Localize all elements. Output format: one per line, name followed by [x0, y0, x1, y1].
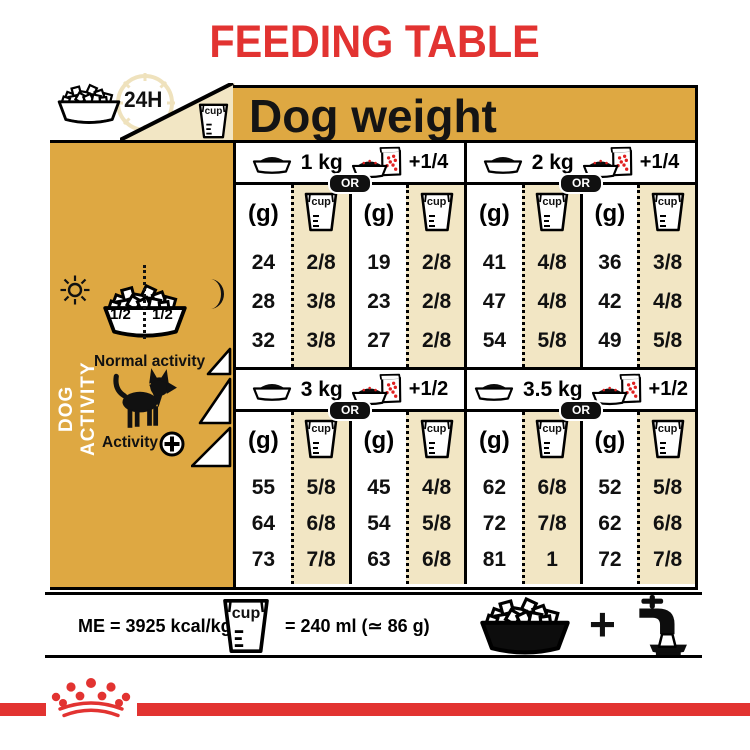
moon-icon	[199, 278, 225, 310]
section-3-5kg: (g) 62 72 81 cup 6/8 7/8 1 (	[464, 412, 695, 584]
plus-sign: +	[589, 597, 616, 651]
gram-value: 54	[352, 512, 407, 536]
crown-logo	[47, 674, 135, 718]
grams-column: (g) 36 42 49	[580, 185, 638, 367]
weight-cell-1kg: 1 kg +1/4 OR	[236, 143, 464, 182]
cup-value: 7/8	[525, 512, 580, 536]
cup-icon: cup	[304, 192, 338, 237]
dog-activity-vertical-label: DOG ACTIVITY	[56, 341, 86, 477]
table-band-2: 3 kg +1/2 OR 3.5 kg +1/2 OR (g) 55 64	[236, 367, 695, 584]
dog-weight-label: Dog weight	[249, 89, 497, 143]
dog-weight-header: Dog weight	[233, 85, 698, 143]
cup-value: 7/8	[294, 548, 349, 572]
gram-value: 49	[583, 329, 638, 353]
weight-label: 1 kg	[301, 151, 343, 175]
cup-value: 6/8	[525, 476, 580, 500]
half-ration-right: 1/2	[152, 306, 173, 323]
cups-column: cup 3/8 4/8 5/8	[637, 185, 695, 367]
weight-label: 2 kg	[532, 151, 574, 175]
cup-value: 3/8	[640, 251, 695, 275]
weight-label: 3.5 kg	[523, 378, 583, 402]
bottom-bar-right	[137, 703, 750, 716]
cup-value: 2/8	[409, 329, 464, 353]
activity-label: Activity	[102, 434, 158, 452]
meal-split-divider	[143, 265, 146, 339]
or-badge: OR	[559, 400, 603, 421]
cup-value: 2/8	[409, 290, 464, 314]
weight-header-row: 3 kg +1/2 OR 3.5 kg +1/2 OR	[236, 370, 695, 412]
weight-label: 3 kg	[301, 378, 343, 402]
gram-value: 62	[467, 476, 522, 500]
cup-value: 3/8	[294, 290, 349, 314]
cup-value: 5/8	[525, 329, 580, 353]
metabolizable-energy-label: ME = 3925 kcal/kg	[78, 616, 232, 637]
or-badge: OR	[328, 400, 372, 421]
data-row-area: (g) 55 64 73 cup 5/8 6/8 7/8	[236, 412, 695, 584]
or-badge: OR	[328, 173, 372, 194]
cup-value: 4/8	[409, 476, 464, 500]
cup-icon: cup	[304, 419, 338, 464]
weight-header-row: 1 kg +1/4 OR 2 kg +1/4 OR	[236, 143, 695, 185]
gram-value: 81	[467, 548, 522, 572]
grams-column: (g) 45 54 63	[349, 412, 407, 584]
cup-icon: cup	[198, 103, 229, 144]
cup-value: 5/8	[294, 476, 349, 500]
gram-value: 64	[236, 512, 291, 536]
gram-value: 23	[352, 290, 407, 314]
gram-value: 45	[352, 476, 407, 500]
section-1kg: (g) 24 28 32 cup 2/8 3/8 3/8	[236, 185, 464, 367]
gram-value: 72	[583, 548, 638, 572]
kibble-bowl-icon	[465, 596, 585, 656]
bottom-bar-left	[0, 703, 46, 716]
dog-icon	[106, 367, 178, 431]
half-ration-left: 1/2	[110, 306, 131, 323]
cup-value: 6/8	[294, 512, 349, 536]
cup-icon: cup	[651, 192, 685, 237]
cup-value: 4/8	[640, 290, 695, 314]
cups-column: cup 6/8 7/8 1	[522, 412, 580, 584]
cup-value: 7/8	[640, 548, 695, 572]
cups-column: cup 5/8 6/8 7/8	[637, 412, 695, 584]
dry-bowl-icon	[474, 379, 514, 401]
grams-column: (g) 52 62 72	[580, 412, 638, 584]
activity-plus-icon	[158, 430, 186, 458]
gram-value: 27	[352, 329, 407, 353]
weight-cell-3-5kg: 3.5 kg +1/2 OR	[464, 370, 695, 409]
gram-value: 41	[467, 251, 522, 275]
table-band-1: 1 kg +1/4 OR 2 kg +1/4 OR (g) 24 28	[236, 143, 695, 367]
cup-value: 5/8	[409, 512, 464, 536]
grams-column: (g) 41 47 54	[467, 185, 522, 367]
gram-value: 62	[583, 512, 638, 536]
grams-column: (g) 62 72 81	[467, 412, 522, 584]
kibble-bowl-icon	[54, 83, 124, 125]
gram-value: 28	[236, 290, 291, 314]
cups-column: cup 2/8 2/8 2/8	[406, 185, 464, 367]
wet-add-label: +1/2	[649, 378, 688, 401]
grams-column: (g) 55 64 73	[236, 412, 291, 584]
wet-add-label: +1/2	[409, 378, 448, 401]
gram-value: 73	[236, 548, 291, 572]
gram-value: 63	[352, 548, 407, 572]
or-badge: OR	[559, 173, 603, 194]
cup-value: 2/8	[294, 251, 349, 275]
dry-bowl-icon	[252, 152, 292, 174]
gram-value: 72	[467, 512, 522, 536]
cup-value: 6/8	[409, 548, 464, 572]
cup-icon: cup	[221, 598, 271, 659]
footer-info-bar: ME = 3925 kcal/kg cup = 240 ml (≃ 86 g) …	[45, 592, 702, 658]
gram-value: 47	[467, 290, 522, 314]
wet-add-label: +1/4	[640, 151, 679, 174]
gram-value: 19	[352, 251, 407, 275]
dry-bowl-icon	[252, 379, 292, 401]
cup-icon: cup	[420, 192, 454, 237]
cup-volume-label: = 240 ml (≃ 86 g)	[285, 616, 430, 637]
cup-value: 4/8	[525, 251, 580, 275]
section-2kg: (g) 41 47 54 cup 4/8 4/8 5/8	[464, 185, 695, 367]
cup-value: 4/8	[525, 290, 580, 314]
cup-value: 1	[525, 548, 580, 572]
gram-value: 54	[467, 329, 522, 353]
gram-value: 52	[583, 476, 638, 500]
grams-column: (g) 24 28 32	[236, 185, 291, 367]
cup-icon: cup	[420, 419, 454, 464]
cup-icon: cup	[535, 192, 569, 237]
weight-cell-3kg: 3 kg +1/2 OR	[236, 370, 464, 409]
cups-column: cup 2/8 3/8 3/8	[291, 185, 349, 367]
wet-add-label: +1/4	[409, 151, 448, 174]
cup-value: 5/8	[640, 329, 695, 353]
cup-value: 2/8	[409, 251, 464, 275]
cups-column: cup 4/8 4/8 5/8	[522, 185, 580, 367]
page-title-wrap: FEEDING TABLE	[0, 16, 750, 68]
section-3kg: (g) 55 64 73 cup 5/8 6/8 7/8	[236, 412, 464, 584]
gram-value: 36	[583, 251, 638, 275]
cup-icon: cup	[651, 419, 685, 464]
cups-column: cup 4/8 5/8 6/8	[406, 412, 464, 584]
cup-icon: cup	[535, 419, 569, 464]
sun-icon	[60, 275, 90, 305]
gram-value: 24	[236, 251, 291, 275]
feeding-table: 1 kg +1/4 OR 2 kg +1/4 OR (g) 24 28	[233, 140, 698, 590]
cups-column: cup 5/8 6/8 7/8	[291, 412, 349, 584]
dog-activity-sidebar: 1/2 1/2 DOG ACTIVITY Normal activity Act…	[50, 140, 233, 590]
page-title: FEEDING TABLE	[210, 16, 540, 68]
weight-cell-2kg: 2 kg +1/4 OR	[464, 143, 695, 182]
gram-value: 32	[236, 329, 291, 353]
cup-value: 3/8	[294, 329, 349, 353]
gram-value: 42	[583, 290, 638, 314]
activity-triangles-icon	[191, 346, 233, 470]
cup-value: 5/8	[640, 476, 695, 500]
dry-bowl-icon	[483, 152, 523, 174]
grams-column: (g) 19 23 27	[349, 185, 407, 367]
gram-value: 55	[236, 476, 291, 500]
cup-value: 6/8	[640, 512, 695, 536]
water-tap-icon	[622, 595, 696, 655]
data-row-area: (g) 24 28 32 cup 2/8 3/8 3/8	[236, 185, 695, 367]
